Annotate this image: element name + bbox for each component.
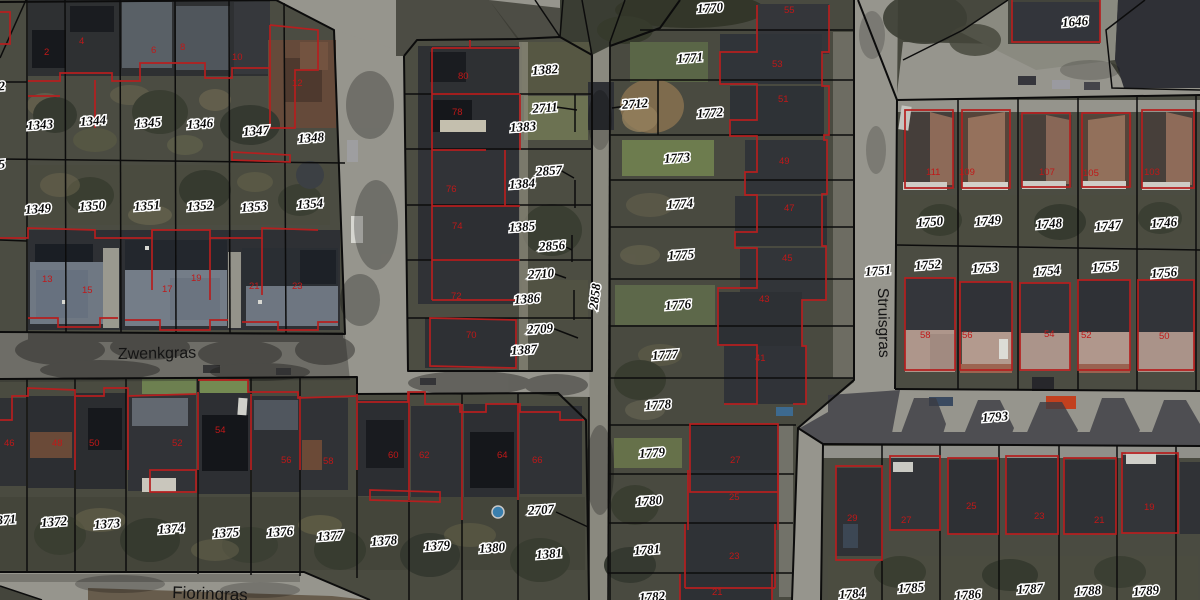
- svg-text:64: 64: [497, 450, 508, 461]
- svg-text:1786: 1786: [955, 586, 982, 600]
- svg-text:1382: 1382: [532, 61, 559, 78]
- svg-text:1784: 1784: [839, 585, 866, 600]
- svg-text:2712: 2712: [621, 95, 649, 112]
- svg-text:13: 13: [42, 274, 53, 285]
- svg-text:1384: 1384: [509, 175, 536, 192]
- svg-text:1778: 1778: [645, 396, 672, 413]
- svg-text:2857: 2857: [535, 162, 563, 179]
- svg-text:1347: 1347: [243, 122, 270, 139]
- svg-text:41: 41: [755, 353, 766, 364]
- svg-text:1755: 1755: [1092, 258, 1119, 275]
- svg-text:1379: 1379: [424, 537, 451, 554]
- svg-text:50: 50: [1159, 331, 1170, 342]
- svg-text:10: 10: [232, 52, 243, 63]
- svg-text:2856: 2856: [538, 237, 566, 254]
- svg-text:1748: 1748: [1036, 215, 1063, 232]
- svg-text:2707: 2707: [527, 501, 555, 518]
- svg-text:1374: 1374: [158, 520, 185, 537]
- svg-text:56: 56: [281, 455, 292, 466]
- svg-text:56: 56: [962, 330, 973, 341]
- svg-text:1376: 1376: [267, 523, 294, 540]
- svg-text:1756: 1756: [1151, 264, 1178, 281]
- svg-text:15: 15: [82, 285, 93, 296]
- svg-text:1371: 1371: [0, 511, 17, 528]
- svg-text:2711: 2711: [531, 99, 558, 116]
- svg-text:1354: 1354: [297, 195, 324, 212]
- svg-text:52: 52: [172, 438, 183, 449]
- svg-text:107: 107: [1039, 167, 1055, 178]
- svg-text:111: 111: [926, 167, 940, 178]
- svg-text:1345: 1345: [135, 114, 162, 131]
- svg-text:1750: 1750: [917, 213, 944, 230]
- svg-text:1782: 1782: [639, 588, 666, 600]
- svg-text:2: 2: [44, 47, 49, 58]
- svg-text:1749: 1749: [975, 212, 1002, 229]
- svg-text:1381: 1381: [536, 545, 563, 562]
- svg-text:1779: 1779: [639, 444, 666, 461]
- svg-text:1372: 1372: [41, 513, 68, 530]
- svg-text:1787: 1787: [1017, 580, 1044, 597]
- svg-text:1375: 1375: [213, 524, 240, 541]
- svg-text:1349: 1349: [25, 200, 52, 217]
- svg-text:1777: 1777: [652, 346, 679, 363]
- svg-text:53: 53: [772, 59, 783, 70]
- svg-text:1343: 1343: [27, 116, 54, 133]
- svg-text:27: 27: [901, 515, 912, 526]
- svg-text:49: 49: [779, 156, 790, 167]
- svg-text:1775: 1775: [668, 246, 695, 263]
- svg-text:76: 76: [446, 184, 457, 195]
- svg-text:19: 19: [191, 273, 202, 284]
- svg-text:54: 54: [1044, 329, 1055, 340]
- svg-text:47: 47: [784, 203, 795, 214]
- svg-text:45: 45: [782, 253, 793, 264]
- svg-text:27: 27: [730, 455, 741, 466]
- svg-text:74: 74: [452, 221, 463, 232]
- svg-text:1751: 1751: [865, 262, 892, 279]
- svg-text:1348: 1348: [298, 129, 325, 146]
- svg-text:1772: 1772: [697, 104, 724, 121]
- svg-text:Fioringras: Fioringras: [172, 583, 248, 600]
- svg-text:1776: 1776: [665, 296, 692, 313]
- svg-text:48: 48: [52, 438, 63, 449]
- svg-text:2709: 2709: [526, 320, 554, 337]
- svg-text:1771: 1771: [677, 49, 704, 66]
- svg-text:1770: 1770: [697, 0, 724, 16]
- svg-text:1353: 1353: [241, 198, 268, 215]
- svg-text:1351: 1351: [134, 197, 161, 214]
- svg-text:51: 51: [778, 94, 789, 105]
- svg-text:Zwenkgras: Zwenkgras: [118, 345, 197, 363]
- svg-text:50: 50: [89, 438, 100, 449]
- svg-text:29: 29: [847, 513, 858, 524]
- svg-text:6: 6: [151, 45, 156, 56]
- svg-text:60: 60: [388, 450, 399, 461]
- svg-text:1378: 1378: [371, 532, 398, 549]
- svg-text:80: 80: [458, 71, 469, 82]
- svg-text:1386: 1386: [514, 290, 541, 307]
- svg-text:1793: 1793: [982, 408, 1009, 425]
- svg-text:1380: 1380: [479, 539, 506, 556]
- svg-text:105: 105: [1083, 168, 1099, 179]
- svg-text:46: 46: [4, 438, 15, 449]
- svg-text:55: 55: [784, 5, 795, 16]
- svg-text:1646: 1646: [1062, 13, 1089, 30]
- svg-text:70: 70: [466, 330, 477, 341]
- svg-text:58: 58: [920, 330, 931, 341]
- svg-text:Struisgras: Struisgras: [874, 288, 892, 358]
- svg-text:21: 21: [1094, 515, 1105, 526]
- svg-text:21: 21: [249, 281, 260, 292]
- svg-text:1789: 1789: [1133, 582, 1160, 599]
- svg-text:1344: 1344: [80, 112, 107, 129]
- svg-text:58: 58: [323, 456, 334, 467]
- svg-text:1774: 1774: [667, 195, 694, 212]
- svg-text:1387: 1387: [511, 341, 538, 358]
- svg-text:43: 43: [759, 294, 770, 305]
- svg-text:62: 62: [419, 450, 430, 461]
- svg-text:1747: 1747: [1095, 217, 1122, 234]
- svg-text:19: 19: [1144, 502, 1155, 513]
- svg-text:1385: 1385: [509, 218, 536, 235]
- svg-text:1754: 1754: [1034, 262, 1061, 279]
- svg-text:1352: 1352: [187, 197, 214, 214]
- svg-text:23: 23: [1034, 511, 1045, 522]
- svg-text:103: 103: [1144, 167, 1160, 178]
- svg-text:21: 21: [712, 587, 723, 598]
- svg-text:12: 12: [292, 78, 303, 89]
- svg-text:1346: 1346: [187, 115, 214, 132]
- svg-text:66: 66: [532, 455, 543, 466]
- svg-text:25: 25: [729, 492, 740, 503]
- svg-text:25: 25: [966, 501, 977, 512]
- svg-text:1785: 1785: [898, 579, 925, 596]
- svg-text:8: 8: [180, 42, 185, 53]
- svg-text:1788: 1788: [1075, 582, 1102, 599]
- svg-text:23: 23: [729, 551, 740, 562]
- svg-text:54: 54: [215, 425, 226, 436]
- svg-text:78: 78: [452, 107, 463, 118]
- svg-text:4: 4: [79, 36, 84, 47]
- svg-text:1377: 1377: [317, 527, 344, 544]
- svg-text:1780: 1780: [636, 492, 663, 509]
- svg-text:52: 52: [1081, 330, 1092, 341]
- svg-text:1753: 1753: [972, 259, 999, 276]
- svg-text:1350: 1350: [79, 197, 106, 214]
- svg-text:23: 23: [292, 281, 303, 292]
- svg-text:1773: 1773: [664, 149, 691, 166]
- svg-text:109: 109: [959, 167, 975, 178]
- svg-text:1373: 1373: [94, 515, 121, 532]
- svg-text:1781: 1781: [634, 541, 661, 558]
- svg-text:2710: 2710: [527, 265, 555, 282]
- svg-text:17: 17: [162, 284, 173, 295]
- svg-text:1746: 1746: [1151, 214, 1178, 231]
- svg-text:1383: 1383: [510, 118, 537, 135]
- svg-text:72: 72: [451, 291, 462, 302]
- svg-text:1752: 1752: [915, 256, 942, 273]
